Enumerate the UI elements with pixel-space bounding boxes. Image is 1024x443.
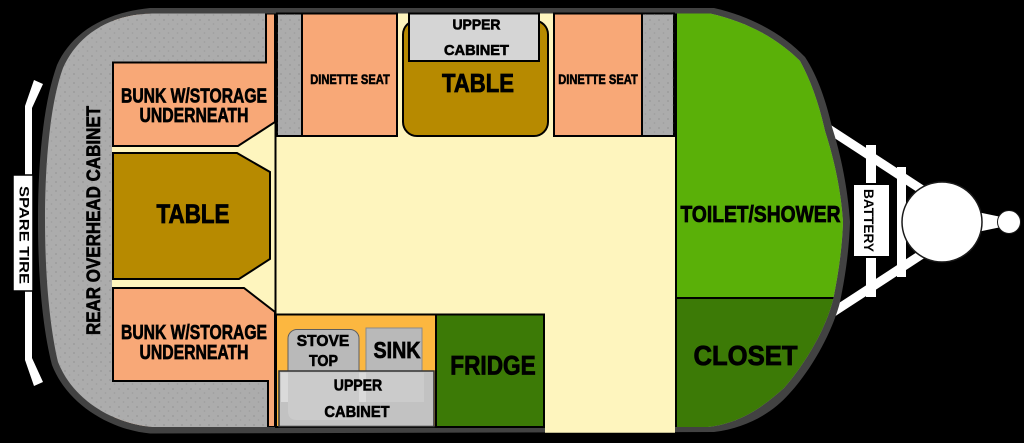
svg-text:CABINET: CABINET bbox=[444, 42, 509, 59]
svg-text:CABINET: CABINET bbox=[324, 404, 389, 421]
svg-text:DINETTE SEAT: DINETTE SEAT bbox=[310, 71, 390, 87]
svg-text:UNDERNEATH: UNDERNEATH bbox=[140, 105, 249, 127]
svg-text:UPPER: UPPER bbox=[334, 378, 383, 395]
svg-text:SPARE TIRE: SPARE TIRE bbox=[17, 186, 32, 284]
svg-text:REAR OVERHEAD CABINET: REAR OVERHEAD CABINET bbox=[84, 106, 105, 335]
svg-text:TOILET/SHOWER: TOILET/SHOWER bbox=[681, 201, 841, 227]
svg-text:BATTERY: BATTERY bbox=[861, 189, 877, 253]
svg-text:TABLE: TABLE bbox=[157, 199, 230, 229]
svg-text:UNDERNEATH: UNDERNEATH bbox=[140, 342, 249, 364]
svg-text:CLOSET: CLOSET bbox=[694, 340, 798, 371]
svg-text:BUNK W/STORAGE: BUNK W/STORAGE bbox=[121, 322, 267, 344]
svg-text:SINK: SINK bbox=[374, 337, 421, 363]
svg-text:TOP: TOP bbox=[309, 353, 338, 370]
svg-text:TABLE: TABLE bbox=[442, 68, 514, 98]
svg-text:STOVE: STOVE bbox=[297, 333, 350, 350]
svg-text:DINETTE SEAT: DINETTE SEAT bbox=[558, 71, 638, 87]
svg-text:UPPER: UPPER bbox=[453, 17, 501, 34]
svg-text:FRIDGE: FRIDGE bbox=[450, 351, 535, 381]
